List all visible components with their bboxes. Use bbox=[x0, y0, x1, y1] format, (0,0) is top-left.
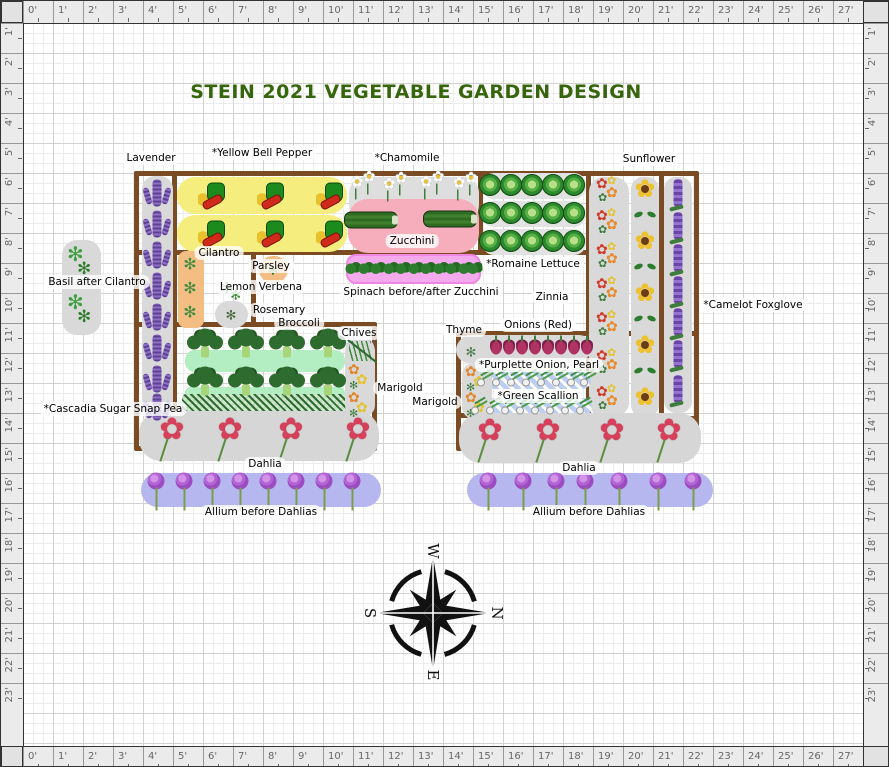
ruler-label-17ft: 17' bbox=[533, 747, 563, 767]
ruler-label-8ft: 8' bbox=[1, 233, 23, 263]
scallion-icon[interactable] bbox=[470, 401, 486, 414]
ruler-label-10ft: 10' bbox=[864, 293, 889, 323]
ruler-label-23ft: 23' bbox=[713, 1, 743, 23]
ruler-label-14ft: 14' bbox=[443, 747, 473, 767]
ruler-bottom: 0'1'2'3'4'5'6'7'8'9'10'11'12'13'14'15'16… bbox=[23, 746, 863, 767]
ruler-label-3ft: 3' bbox=[113, 1, 143, 23]
allium-icon[interactable] bbox=[260, 473, 277, 490]
lettuce-icon[interactable] bbox=[500, 202, 522, 224]
broccoli-icon[interactable] bbox=[184, 365, 226, 396]
basil-icon[interactable] bbox=[66, 293, 96, 329]
garden-planner-canvas: 0'1'2'3'4'5'6'7'8'9'10'11'12'13'14'15'16… bbox=[0, 0, 889, 767]
lettuce-icon[interactable] bbox=[521, 174, 543, 196]
ruler-label-10ft: 10' bbox=[323, 747, 353, 767]
foxglove-icon[interactable] bbox=[674, 308, 683, 336]
dahlia-icon[interactable] bbox=[214, 414, 246, 446]
label-chamomile: *Chamomile bbox=[371, 151, 444, 165]
ruler-label-4ft: 4' bbox=[864, 113, 889, 143]
ruler-label-6ft: 6' bbox=[203, 1, 233, 23]
lettuce-icon[interactable] bbox=[479, 230, 501, 252]
scallion-icon[interactable] bbox=[506, 373, 522, 386]
ruler-label-12ft: 12' bbox=[383, 1, 413, 23]
lettuce-icon[interactable] bbox=[479, 202, 501, 224]
sunflower-icon[interactable] bbox=[632, 280, 658, 306]
zinnia-icon[interactable] bbox=[596, 385, 620, 413]
label-parsley: Parsley bbox=[248, 259, 294, 273]
ruler-label-12ft: 12' bbox=[383, 747, 413, 767]
daisy-icon[interactable] bbox=[361, 170, 377, 195]
scallion-icon[interactable] bbox=[579, 373, 595, 386]
ruler-label-5ft: 5' bbox=[1, 143, 23, 173]
ruler-label-2ft: 2' bbox=[83, 747, 113, 767]
zucchini-icon[interactable] bbox=[344, 212, 398, 229]
scallion-icon[interactable] bbox=[521, 373, 537, 386]
page-title: STEIN 2021 VEGETABLE GARDEN DESIGN bbox=[1, 81, 831, 103]
ruler-label-11ft: 11' bbox=[864, 323, 889, 353]
ruler-label-13ft: 13' bbox=[413, 1, 443, 23]
zinnia-icon[interactable] bbox=[596, 243, 620, 271]
ruler-label-7ft: 7' bbox=[864, 203, 889, 233]
lettuce-icon[interactable] bbox=[542, 174, 564, 196]
sunflower-icon[interactable] bbox=[632, 176, 658, 202]
ruler-top: 0'1'2'3'4'5'6'7'8'9'10'11'12'13'14'15'16… bbox=[23, 1, 863, 24]
lavender-icon[interactable] bbox=[153, 304, 162, 331]
label-onions-red: Onions (Red) bbox=[500, 318, 576, 332]
ruler-label-8ft: 8' bbox=[263, 747, 293, 767]
zinnia-icon[interactable] bbox=[596, 177, 620, 205]
lavender-icon[interactable] bbox=[153, 211, 162, 238]
foxglove-icon[interactable] bbox=[674, 244, 683, 272]
ruler-label-23ft: 23' bbox=[864, 683, 889, 713]
label-dahlia-left: Dahlia bbox=[244, 457, 285, 471]
label-green-scallion: *Green Scallion bbox=[493, 389, 582, 403]
ruler-label-4ft: 4' bbox=[143, 1, 173, 23]
allium-icon[interactable] bbox=[204, 473, 221, 490]
zinnia-icon[interactable] bbox=[596, 277, 620, 305]
ruler-label-6ft: 6' bbox=[1, 173, 23, 203]
ruler-label-2ft: 2' bbox=[864, 53, 889, 83]
spinach-icon[interactable] bbox=[468, 261, 483, 275]
scallion-icon[interactable] bbox=[551, 373, 567, 386]
zucchini-icon[interactable] bbox=[423, 211, 477, 228]
cilantro-icon[interactable] bbox=[183, 279, 196, 298]
pepper-icon[interactable] bbox=[316, 183, 348, 210]
dahlia-icon[interactable] bbox=[156, 414, 188, 446]
ruler-label-0ft: 0' bbox=[23, 1, 53, 23]
ruler-label-14ft: 14' bbox=[443, 1, 473, 23]
lettuce-icon[interactable] bbox=[542, 230, 564, 252]
foxglove-icon[interactable] bbox=[674, 212, 683, 240]
broccoli-icon[interactable] bbox=[307, 365, 349, 396]
broccoli-icon[interactable] bbox=[225, 327, 267, 358]
lavender-icon[interactable] bbox=[153, 335, 162, 362]
ruler-label-13ft: 13' bbox=[1, 383, 23, 413]
dahlia-icon[interactable] bbox=[653, 415, 685, 447]
pepper-icon[interactable] bbox=[316, 221, 348, 248]
daisy-icon[interactable] bbox=[430, 170, 446, 195]
ruler-label-25ft: 25' bbox=[773, 1, 803, 23]
ruler-label-23ft: 23' bbox=[1, 683, 23, 713]
ruler-label-18ft: 18' bbox=[563, 747, 593, 767]
lettuce-icon[interactable] bbox=[563, 230, 585, 252]
allium-icon[interactable] bbox=[577, 473, 594, 490]
ruler-label-21ft: 21' bbox=[653, 747, 683, 767]
ruler-label-15ft: 15' bbox=[864, 443, 889, 473]
label-yellow-bell-pepper: *Yellow Bell Pepper bbox=[208, 146, 316, 160]
label-cilantro: Cilantro bbox=[195, 246, 244, 260]
daisy-icon[interactable] bbox=[393, 171, 409, 196]
broccoli-icon[interactable] bbox=[225, 365, 267, 396]
lettuce-icon[interactable] bbox=[500, 174, 522, 196]
ruler-left: 1'2'3'4'5'6'7'8'9'10'11'12'13'14'15'16'1… bbox=[1, 23, 24, 746]
label-marigold-left: Marigold bbox=[373, 381, 426, 395]
lettuce-icon[interactable] bbox=[521, 230, 543, 252]
ruler-label-11ft: 11' bbox=[353, 747, 383, 767]
ruler-label-23ft: 23' bbox=[713, 747, 743, 767]
sunflower-icon[interactable] bbox=[632, 228, 658, 254]
ruler-label-2ft: 2' bbox=[83, 1, 113, 23]
ruler-label-9ft: 9' bbox=[1, 263, 23, 293]
ruler-label-14ft: 14' bbox=[864, 413, 889, 443]
sunleaf-icon[interactable] bbox=[634, 314, 656, 324]
allium-icon[interactable] bbox=[685, 473, 702, 490]
allium-icon[interactable] bbox=[480, 473, 497, 490]
ruler-corner-top-right bbox=[863, 1, 889, 23]
ruler-corner-bottom-right bbox=[863, 746, 889, 767]
foxglove-icon[interactable] bbox=[674, 276, 683, 304]
ruler-label-1ft: 1' bbox=[864, 23, 889, 53]
ruler-label-25ft: 25' bbox=[773, 747, 803, 767]
sunleaf-icon[interactable] bbox=[634, 366, 656, 376]
ruler-label-3ft: 3' bbox=[1, 83, 23, 113]
ruler-label-19ft: 19' bbox=[1, 563, 23, 593]
ruler-label-16ft: 16' bbox=[503, 1, 533, 23]
ruler-label-8ft: 8' bbox=[263, 1, 293, 23]
broccoli-icon[interactable] bbox=[266, 327, 308, 358]
pepper-icon[interactable] bbox=[198, 221, 230, 248]
lettuce-icon[interactable] bbox=[542, 202, 564, 224]
ruler-label-17ft: 17' bbox=[864, 503, 889, 533]
sunflower-icon[interactable] bbox=[632, 332, 658, 358]
lettuce-icon[interactable] bbox=[479, 174, 501, 196]
ruler-label-21ft: 21' bbox=[864, 623, 889, 653]
label-basil-after-cilantro: Basil after Cilantro bbox=[44, 275, 149, 289]
foxglove-icon[interactable] bbox=[674, 375, 683, 403]
ruler-label-15ft: 15' bbox=[473, 1, 503, 23]
ruler-corner-bottom-left bbox=[1, 746, 23, 767]
label-spinach: Spinach before/after Zucchini bbox=[339, 285, 502, 299]
ruler-label-19ft: 19' bbox=[864, 563, 889, 593]
ruler-label-27ft: 27' bbox=[833, 747, 863, 767]
allium-icon[interactable] bbox=[548, 473, 565, 490]
ruler-label-10ft: 10' bbox=[1, 293, 23, 323]
ruler-label-1ft: 1' bbox=[53, 747, 83, 767]
allium-icon[interactable] bbox=[650, 473, 667, 490]
label-zinnia: Zinnia bbox=[532, 290, 573, 304]
ruler-label-14ft: 14' bbox=[1, 413, 23, 443]
sunflower-icon[interactable] bbox=[632, 384, 658, 410]
cilantro-icon[interactable] bbox=[183, 303, 196, 322]
ruler-label-22ft: 22' bbox=[1, 653, 23, 683]
ruler-label-18ft: 18' bbox=[563, 1, 593, 23]
zinnia-icon[interactable] bbox=[596, 311, 620, 339]
ruler-label-16ft: 16' bbox=[1, 473, 23, 503]
ruler-label-7ft: 7' bbox=[233, 747, 263, 767]
dahlia-icon[interactable] bbox=[275, 414, 307, 446]
label-allium-left: Allium before Dahlias bbox=[201, 505, 321, 519]
label-dahlia-right: Dahlia bbox=[558, 461, 599, 475]
ruler-label-1ft: 1' bbox=[1, 23, 23, 53]
allium-icon[interactable] bbox=[611, 473, 628, 490]
label-lemon-verbena: Lemon Verbena bbox=[216, 280, 306, 294]
label-marigold-right: Marigold bbox=[408, 395, 461, 409]
compass-letter-w: W bbox=[424, 543, 442, 559]
label-allium-right: Allium before Dahlias bbox=[529, 505, 649, 519]
ruler-label-1ft: 1' bbox=[53, 1, 83, 23]
ruler-label-6ft: 6' bbox=[203, 747, 233, 767]
label-chives: Chives bbox=[337, 326, 380, 340]
rosemary-icon[interactable] bbox=[226, 305, 237, 324]
lavender-icon[interactable] bbox=[153, 242, 162, 269]
scallion-icon[interactable] bbox=[491, 373, 507, 386]
ruler-label-11ft: 11' bbox=[353, 1, 383, 23]
ruler-label-18ft: 18' bbox=[1, 533, 23, 563]
ruler-label-12ft: 12' bbox=[1, 353, 23, 383]
label-broccoli: Broccoli bbox=[274, 316, 324, 330]
ruler-label-0ft: 0' bbox=[23, 747, 53, 767]
ruler-label-4ft: 4' bbox=[1, 113, 23, 143]
foxglove-icon[interactable] bbox=[674, 179, 683, 207]
ruler-label-27ft: 27' bbox=[833, 1, 863, 23]
ruler-label-21ft: 21' bbox=[653, 1, 683, 23]
ruler-label-19ft: 19' bbox=[593, 747, 623, 767]
ruler-label-22ft: 22' bbox=[683, 747, 713, 767]
ruler-right: 1'2'3'4'5'6'7'8'9'10'11'12'13'14'15'16'1… bbox=[863, 23, 889, 746]
compass-rose[interactable]: N E S W bbox=[363, 543, 503, 683]
ruler-label-17ft: 17' bbox=[1, 503, 23, 533]
ruler-label-15ft: 15' bbox=[473, 747, 503, 767]
lettuce-icon[interactable] bbox=[521, 202, 543, 224]
sunleaf-icon[interactable] bbox=[634, 262, 656, 272]
compass-letter-n: N bbox=[488, 606, 503, 619]
ruler-label-5ft: 5' bbox=[173, 747, 203, 767]
ruler-label-15ft: 15' bbox=[1, 443, 23, 473]
ruler-label-7ft: 7' bbox=[1, 203, 23, 233]
thyme-icon[interactable] bbox=[466, 342, 477, 361]
ruler-label-16ft: 16' bbox=[864, 473, 889, 503]
compass-letter-e: E bbox=[424, 670, 442, 681]
label-sunflower: Sunflower bbox=[619, 152, 679, 166]
ruler-label-20ft: 20' bbox=[864, 593, 889, 623]
lettuce-icon[interactable] bbox=[500, 230, 522, 252]
ruler-label-8ft: 8' bbox=[864, 233, 889, 263]
lavender-icon[interactable] bbox=[153, 366, 162, 393]
allium-icon[interactable] bbox=[344, 473, 361, 490]
ruler-label-9ft: 9' bbox=[864, 263, 889, 293]
broccoli-icon[interactable] bbox=[266, 365, 308, 396]
dahlia-icon[interactable] bbox=[596, 415, 628, 447]
ruler-label-7ft: 7' bbox=[233, 1, 263, 23]
marigold-icon[interactable] bbox=[348, 362, 370, 392]
daisy-icon[interactable] bbox=[463, 171, 479, 196]
label-camelot-foxglove: *Camelot Foxglove bbox=[699, 298, 806, 312]
ruler-label-24ft: 24' bbox=[743, 747, 773, 767]
ruler-label-13ft: 13' bbox=[864, 383, 889, 413]
ruler-label-26ft: 26' bbox=[803, 1, 833, 23]
ruler-label-26ft: 26' bbox=[803, 747, 833, 767]
ruler-label-2ft: 2' bbox=[1, 53, 23, 83]
ruler-label-18ft: 18' bbox=[864, 533, 889, 563]
ruler-label-20ft: 20' bbox=[1, 593, 23, 623]
ruler-label-21ft: 21' bbox=[1, 623, 23, 653]
ruler-label-11ft: 11' bbox=[1, 323, 23, 353]
allium-icon[interactable] bbox=[176, 473, 193, 490]
allium-icon[interactable] bbox=[515, 473, 532, 490]
label-cascadia-sugar-snap-pea: *Cascadia Sugar Snap Pea bbox=[40, 402, 187, 416]
zinnia-icon[interactable] bbox=[596, 209, 620, 237]
compass-letter-s: S bbox=[363, 608, 379, 618]
ruler-label-16ft: 16' bbox=[503, 747, 533, 767]
allium-icon[interactable] bbox=[232, 473, 249, 490]
ruler-corner-top-left bbox=[1, 1, 23, 23]
ruler-label-6ft: 6' bbox=[864, 173, 889, 203]
ruler-label-5ft: 5' bbox=[864, 143, 889, 173]
ruler-label-3ft: 3' bbox=[113, 747, 143, 767]
allium-icon[interactable] bbox=[148, 473, 165, 490]
foxglove-icon[interactable] bbox=[674, 340, 683, 368]
ruler-label-12ft: 12' bbox=[864, 353, 889, 383]
ruler-label-20ft: 20' bbox=[623, 747, 653, 767]
ruler-label-22ft: 22' bbox=[864, 653, 889, 683]
pepper-icon[interactable] bbox=[257, 221, 289, 248]
chives-icon[interactable] bbox=[349, 341, 371, 361]
ruler-label-9ft: 9' bbox=[293, 747, 323, 767]
pepper-icon[interactable] bbox=[198, 183, 230, 210]
allium-icon[interactable] bbox=[288, 473, 305, 490]
ruler-label-13ft: 13' bbox=[413, 747, 443, 767]
ruler-label-17ft: 17' bbox=[533, 1, 563, 23]
lettuce-icon[interactable] bbox=[563, 202, 585, 224]
label-rosemary: Rosemary bbox=[249, 303, 309, 317]
allium-icon[interactable] bbox=[316, 473, 333, 490]
ruler-label-10ft: 10' bbox=[323, 1, 353, 23]
ruler-label-3ft: 3' bbox=[864, 83, 889, 113]
dahlia-icon[interactable] bbox=[532, 415, 564, 447]
ruler-label-22ft: 22' bbox=[683, 1, 713, 23]
ruler-label-20ft: 20' bbox=[623, 1, 653, 23]
dahlia-icon[interactable] bbox=[474, 415, 506, 447]
broccoli-icon[interactable] bbox=[184, 327, 226, 358]
label-thyme: Thyme bbox=[442, 323, 486, 337]
dahlia-icon[interactable] bbox=[342, 414, 374, 446]
label-lavender: Lavender bbox=[122, 151, 179, 165]
label-romaine-lettuce: *Romaine Lettuce bbox=[482, 257, 584, 271]
lavender-icon[interactable] bbox=[153, 273, 162, 300]
label-zucchini: Zucchini bbox=[386, 234, 439, 248]
ruler-label-9ft: 9' bbox=[293, 1, 323, 23]
ruler-label-19ft: 19' bbox=[593, 1, 623, 23]
ruler-label-24ft: 24' bbox=[743, 1, 773, 23]
lavender-icon[interactable] bbox=[153, 180, 162, 207]
scallion-icon[interactable] bbox=[476, 373, 492, 386]
scallion-icon[interactable] bbox=[536, 373, 552, 386]
lettuce-icon[interactable] bbox=[563, 174, 585, 196]
pepper-icon[interactable] bbox=[257, 183, 289, 210]
label-purplette-onion: *Purplette Onion, Pearl bbox=[475, 358, 603, 372]
ruler-label-4ft: 4' bbox=[143, 747, 173, 767]
ruler-label-5ft: 5' bbox=[173, 1, 203, 23]
sunleaf-icon[interactable] bbox=[634, 210, 656, 220]
